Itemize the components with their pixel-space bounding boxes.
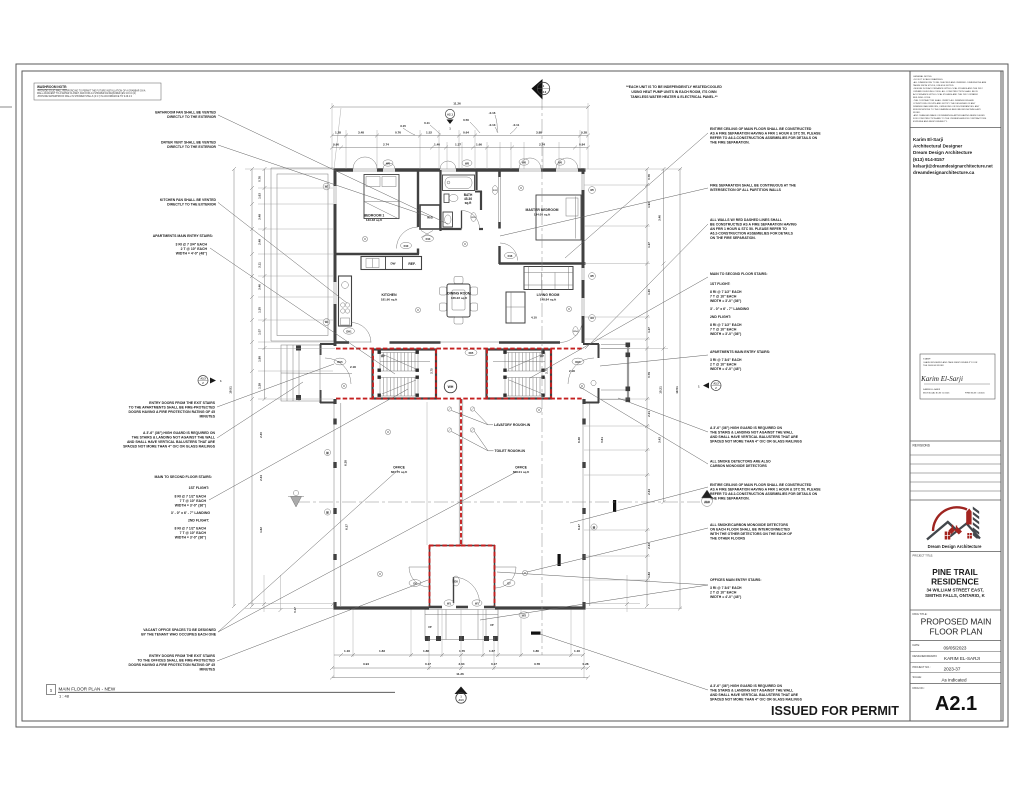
svg-text:148.84 sq.ft: 148.84 sq.ft	[540, 298, 556, 302]
svg-text:0.76: 0.76	[647, 174, 651, 180]
svg-text:2.74: 2.74	[383, 143, 389, 147]
svg-text:D7: D7	[507, 581, 511, 585]
svg-text:2ND FLIGHT:: 2ND FLIGHT:	[188, 519, 209, 523]
svg-text:1.63: 1.63	[258, 193, 262, 199]
svg-text:KARIM EL-SARJI: KARIM EL-SARJI	[944, 656, 980, 661]
svg-text:DATE:: DATE:	[913, 643, 921, 647]
svg-text:-DO NOT SCALE DRAWINGS.: -DO NOT SCALE DRAWINGS.	[913, 78, 944, 81]
svg-text:ON EACH FLOOR SHALL BE INTERCO: ON EACH FLOOR SHALL BE INTERCONNECTED	[710, 528, 790, 532]
svg-text:FIRE SEPARATION SHALL BE CONTI: FIRE SEPARATION SHALL BE CONTINUOUS AT T…	[710, 184, 797, 188]
svg-text:0.11: 0.11	[424, 121, 430, 125]
svg-text:Dream Design Architecture: Dream Design Architecture	[928, 544, 983, 549]
svg-text:1.07: 1.07	[258, 329, 262, 335]
svg-text:126.22 sq.ft: 126.22 sq.ft	[451, 296, 467, 300]
svg-text:A6.2-CONSTRUCTION ASSEMBLIES F: A6.2-CONSTRUCTION ASSEMBLIES FOR DETAILS	[710, 232, 794, 236]
svg-text:REF.: REF.	[408, 262, 415, 266]
svg-text:0.79: 0.79	[647, 372, 651, 378]
svg-text:W8: W8	[465, 161, 469, 165]
svg-text:0.17: 0.17	[293, 607, 297, 613]
svg-text:2023-37: 2023-37	[944, 667, 961, 672]
svg-text:W1: W1	[475, 601, 479, 605]
svg-text:1.37: 1.37	[455, 143, 461, 147]
svg-text:A 3'-6" (36") HIGH GUARD IS RE: A 3'-6" (36") HIGH GUARD IS REQUIRED ON	[143, 431, 215, 435]
svg-text:-PROVIDE WATERPROOF WALL IN SH: -PROVIDE WATERPROOF WALL IN SHOWER STALL…	[37, 95, 133, 98]
svg-text:DIRECTLY TO THE EXTERIOR: DIRECTLY TO THE EXTERIOR	[167, 145, 216, 149]
svg-text:DIMENSIONAL ERRORS, OMISSIONS: DIMENSIONAL ERRORS, OMISSIONS OR DISCREP…	[913, 105, 980, 108]
svg-text:2.40: 2.40	[259, 432, 263, 438]
svg-text:THE OTHER FLOORS: THE OTHER FLOORS	[710, 537, 746, 541]
svg-text:PINE TRAIL: PINE TRAIL	[932, 568, 978, 577]
svg-text:OFFICES MAIN ENTRY STAIRS:: OFFICES MAIN ENTRY STAIRS:	[710, 578, 762, 582]
svg-text:7 T @ 10" EACH: 7 T @ 10" EACH	[710, 328, 737, 332]
svg-text:3.46: 3.46	[258, 284, 262, 290]
svg-text:1.38: 1.38	[258, 383, 262, 389]
svg-text:11.26: 11.26	[456, 672, 464, 676]
svg-text:-THE CONTRACTOR SHALL VERIFY A: -THE CONTRACTOR SHALL VERIFY ALL DIMENSI…	[913, 99, 974, 102]
svg-text:WIDTH = 4'-0" (48"): WIDTH = 4'-0" (48")	[710, 595, 741, 599]
svg-text:SPACED NOT MORE THAN 4" O/C OR: SPACED NOT MORE THAN 4" O/C OR GLASS RAI…	[710, 440, 803, 444]
svg-text:RESIDENCE: RESIDENCE	[931, 578, 979, 587]
svg-text:BUILDING CODE.: BUILDING CODE.	[913, 97, 931, 99]
svg-text:663.75 sq.ft: 663.75 sq.ft	[391, 470, 407, 474]
svg-text:1ST FLIGHT:: 1ST FLIGHT:	[710, 282, 731, 286]
svg-text:USING HEAT PUMP UNITS IN EACH: USING HEAT PUMP UNITS IN EACH ROOM, ITS …	[631, 90, 717, 94]
svg-text:2 T @ 10" EACH: 2 T @ 10" EACH	[181, 247, 208, 251]
svg-text:WIDTH = 4'-0" (48"): WIDTH = 4'-0" (48")	[176, 252, 207, 256]
svg-text:ACCORDANCE WITH LOCAL BYLAWS A: ACCORDANCE WITH LOCAL BYLAWS AND THE 201…	[913, 93, 978, 96]
svg-text:A 3'-6" (36") HIGH GUARD IS RE: A 3'-6" (36") HIGH GUARD IS REQUIRED ON	[710, 684, 782, 688]
svg-text:THE STAIRS & LANDING NOT AGAIN: THE STAIRS & LANDING NOT AGAINST THE WAL…	[710, 689, 793, 693]
svg-text:ALL SMOKE/CARBON MONOXIDE DETE: ALL SMOKE/CARBON MONOXIDE DETECTORS	[710, 523, 789, 527]
svg-text:34 WILLIAM STREET EAST,: 34 WILLIAM STREET EAST,	[926, 588, 983, 593]
svg-text:1.52: 1.52	[426, 131, 432, 135]
svg-text:DESIGNED/DRAWN:: DESIGNED/DRAWN:	[913, 654, 938, 658]
svg-text:DIRECTLY TO THE EXTERIOR: DIRECTLY TO THE EXTERIOR	[167, 203, 216, 207]
svg-text:THE STAIRS & LANDING NOT AGAIN: THE STAIRS & LANDING NOT AGAINST THE WAL…	[132, 436, 215, 440]
svg-text:181.90 sq.ft: 181.90 sq.ft	[381, 298, 397, 302]
svg-text:0.17: 0.17	[491, 662, 497, 666]
svg-text:WIDTH = 3'-0" (36"): WIDTH = 3'-0" (36")	[710, 332, 741, 336]
svg-text:19.51: 19.51	[229, 386, 233, 394]
svg-text:WIDTH = 3'-0" (36"): WIDTH = 3'-0" (36")	[710, 299, 741, 303]
svg-text:668.01 sq.ft: 668.01 sq.ft	[513, 470, 529, 474]
svg-text:2.44: 2.44	[647, 489, 651, 495]
svg-text:CONDITIONS ON SITE AND NOTIFY: CONDITIONS ON SITE AND NOTIFY THE DESIGN…	[913, 102, 976, 105]
svg-text:A3.0: A3.0	[704, 500, 710, 504]
svg-text:GENERAL NOTES:: GENERAL NOTES:	[913, 75, 933, 78]
svg-text:2ND FLIGHT:: 2ND FLIGHT:	[710, 315, 731, 319]
svg-text:W6: W6	[522, 160, 526, 164]
svg-text:ALL SMOKE DETECTORS ARE ALSO: ALL SMOKE DETECTORS ARE ALSO	[710, 460, 771, 464]
svg-text:MODIFICATIONS TO THE DRAWINGS: MODIFICATIONS TO THE DRAWINGS BEFORE REV…	[913, 108, 981, 111]
svg-text:A3.3: A3.3	[200, 378, 206, 381]
svg-text:2 T @ 10" EACH: 2 T @ 10" EACH	[710, 363, 737, 367]
svg-text:DW: DW	[391, 262, 396, 266]
svg-text:W2: W2	[522, 613, 526, 617]
svg-text:KITCHEN FAN SHALL BE VENTED: KITCHEN FAN SHALL BE VENTED	[160, 198, 217, 202]
svg-text:VACANT OFFICE SPACES TO BE DES: VACANT OFFICE SPACES TO BE DESIGNED	[143, 628, 216, 632]
svg-text:-DESIGN IS IN ACCORDANCE WITH: -DESIGN IS IN ACCORDANCE WITH LOCAL BYLA…	[913, 87, 983, 90]
svg-text:ENTIRE CEILING OF MAIN FLOOR S: ENTIRE CEILING OF MAIN FLOOR SHALL BE CO…	[710, 127, 812, 131]
svg-text:M: M	[593, 525, 595, 529]
svg-text:A 3'-6" (36") HIGH GUARD IS RE: A 3'-6" (36") HIGH GUARD IS REQUIRED ON	[710, 426, 782, 430]
svg-text:sq.ft: sq.ft	[465, 201, 473, 205]
svg-text:I HAVE REVIEWED AND TAKE RESPO: I HAVE REVIEWED AND TAKE RESPONSIBILITY …	[923, 361, 978, 364]
svg-text:3 RI @ 7 3/4" EACH: 3 RI @ 7 3/4" EACH	[175, 243, 207, 247]
svg-text:THE STAIRS & LANDING NOT AGAIN: THE STAIRS & LANDING NOT AGAINST THE WAL…	[710, 431, 793, 435]
svg-text:3' - 0" x 6' - 7" LANDING: 3' - 0" x 6' - 7" LANDING	[171, 511, 210, 515]
svg-text:2.18: 2.18	[569, 369, 575, 373]
svg-text:3.46: 3.46	[658, 215, 662, 221]
svg-text:7 T @ 10" EACH: 7 T @ 10" EACH	[180, 531, 207, 535]
svg-text:3.78: 3.78	[534, 662, 540, 666]
svg-text:FOR CONSTRUCTION ARE TO THE OW: FOR CONSTRUCTION ARE TO THE OWNERS AND/O…	[913, 117, 987, 120]
svg-text:PROJECT TITLE:: PROJECT TITLE:	[913, 554, 934, 558]
svg-text:WORK.: WORK.	[913, 112, 921, 114]
svg-text:REVISIONS: REVISIONS	[913, 444, 930, 448]
svg-text:3.48: 3.48	[358, 131, 364, 135]
svg-text:0.76: 0.76	[258, 176, 262, 182]
svg-text:2 T @ 10" EACH: 2 T @ 10" EACH	[710, 591, 737, 595]
svg-text:1.66: 1.66	[476, 143, 482, 147]
svg-text:3' - 0" x 6' - 7" LANDING: 3' - 0" x 6' - 7" LANDING	[710, 307, 749, 311]
svg-text:DINING ROOM: DINING ROOM	[447, 292, 471, 296]
svg-text:DWG TITLE:: DWG TITLE:	[913, 612, 928, 616]
svg-text:1.40: 1.40	[434, 143, 440, 147]
svg-text:6.17: 6.17	[345, 524, 349, 530]
svg-text:8 RI @ 7 1/2" EACH: 8 RI @ 7 1/2" EACH	[174, 527, 206, 531]
svg-text:LIVING ROOM: LIVING ROOM	[537, 293, 560, 297]
svg-text:0.61: 0.61	[600, 437, 604, 443]
svg-text:1.16: 1.16	[574, 649, 580, 653]
svg-text:Karim El-Sarji: Karim El-Sarji	[913, 137, 943, 142]
svg-text:THE FIRE SEPARATION.: THE FIRE SEPARATION.	[710, 497, 750, 501]
svg-text:2.48: 2.48	[258, 239, 262, 245]
svg-text:APARTMENTS MAIN ENTRY STAIRS:: APARTMENTS MAIN ENTRY STAIRS:	[153, 234, 213, 238]
svg-text:-0.13: -0.13	[489, 123, 496, 127]
svg-text:AND SHALL HAVE VERTICAL BALUST: AND SHALL HAVE VERTICAL BALUSTERS THAT A…	[710, 693, 799, 697]
svg-text:AND SHALL HAVE VERTICAL BALUST: AND SHALL HAVE VERTICAL BALUSTERS THAT A…	[710, 435, 799, 439]
svg-text:0.76: 0.76	[395, 131, 401, 135]
svg-text:6.17: 6.17	[577, 524, 581, 530]
svg-text:M: M	[326, 510, 328, 514]
svg-text:6.38: 6.38	[344, 460, 348, 466]
svg-text:STAMP:: STAMP:	[923, 358, 931, 361]
svg-text:WASHROOM NOTE:: WASHROOM NOTE:	[37, 85, 67, 89]
svg-text:2.18: 2.18	[350, 365, 356, 369]
svg-text:dreamdesignarchitecture.ca: dreamdesignarchitecture.ca	[913, 170, 975, 175]
svg-text:09/05/2023: 09/05/2023	[944, 646, 967, 651]
svg-text:THE DESIGN WORK: THE DESIGN WORK	[923, 365, 944, 367]
svg-text:SPACED NOT MORE THAN 4" O/C OR: SPACED NOT MORE THAN 4" O/C OR GLASS RAI…	[710, 698, 803, 702]
svg-text:AS A FIRE SEPARATION HAVING A: AS A FIRE SEPARATION HAVING A FRR 1 HOUR…	[710, 132, 821, 136]
svg-text:1.80: 1.80	[533, 649, 539, 653]
svg-text:FIRM BCIN: 115546: FIRM BCIN: 115546	[965, 393, 985, 395]
svg-text:EXPENSE AND RESPONSIBILITY.: EXPENSE AND RESPONSIBILITY.	[913, 120, 948, 123]
svg-text:3.11: 3.11	[258, 262, 262, 268]
svg-text:2.44: 2.44	[259, 475, 263, 481]
svg-text:D05: D05	[469, 351, 474, 355]
svg-text:A2.1: A2.1	[447, 113, 453, 117]
svg-text:1.83: 1.83	[379, 649, 385, 653]
svg-text:ON THE FIRE SEPARATION.: ON THE FIRE SEPARATION.	[710, 236, 756, 240]
svg-text:BEDROOM 1: BEDROOM 1	[364, 214, 385, 218]
svg-text:WIDTH = 3'-0" (36"): WIDTH = 3'-0" (36")	[175, 504, 206, 508]
svg-text:PROPOSED MAIN: PROPOSED MAIN	[921, 617, 992, 627]
svg-text:REFER TO A6.2-CONSTRUCTION ASS: REFER TO A6.2-CONSTRUCTION ASSEMBLIES FO…	[710, 492, 818, 496]
svg-text:TANKLESS WATER HEATER & ELECTR: TANKLESS WATER HEATER & ELECTRICAL PANEL…	[630, 95, 718, 99]
svg-text:3 RI @ 7 3/4" EACH: 3 RI @ 7 3/4" EACH	[710, 358, 742, 362]
svg-text:1.67: 1.67	[489, 649, 495, 653]
svg-text:1.28: 1.28	[335, 131, 341, 135]
svg-text:KITCHEN: KITCHEN	[381, 293, 397, 297]
svg-text:DH1: DH1	[346, 329, 352, 333]
svg-text:1 : 48: 1 : 48	[59, 694, 70, 699]
svg-text:UP: UP	[381, 354, 385, 358]
svg-text:WIDTH = 4'-0" (48"): WIDTH = 4'-0" (48")	[710, 367, 741, 371]
svg-text:LAVATORY ROUGH-IN: LAVATORY ROUGH-IN	[494, 423, 531, 427]
svg-text:DOORS HAVING A FIRE PROTECTION: DOORS HAVING A FIRE PROTECTION RATING OF…	[128, 410, 215, 414]
svg-text:0.64: 0.64	[463, 131, 469, 135]
svg-text:TAKEN FROM STUDS, UNLESS NOTED: TAKEN FROM STUDS, UNLESS NOTED.	[913, 84, 954, 87]
svg-text:W1: W1	[447, 601, 451, 605]
svg-text:WH: WH	[448, 385, 454, 389]
svg-text:SCALE:: SCALE:	[913, 675, 923, 679]
svg-text:2.75: 2.75	[430, 368, 434, 374]
svg-text:D8: D8	[454, 579, 458, 583]
svg-text:MINUTES: MINUTES	[200, 668, 216, 672]
svg-text:0.28: 0.28	[582, 662, 588, 666]
svg-text:REFER TO A6.2-CONSTRUCTION ASS: REFER TO A6.2-CONSTRUCTION ASSEMBLIES FO…	[710, 136, 818, 140]
svg-text:A2.1: A2.1	[935, 693, 977, 715]
svg-text:3.15: 3.15	[400, 124, 406, 128]
svg-text:OFFICE: OFFICE	[515, 466, 527, 470]
svg-text:AN FRR 1 HOUR & STC 50. PLEASE: AN FRR 1 HOUR & STC 50. PLEASE REFER TO	[710, 227, 787, 231]
svg-text:1.88: 1.88	[423, 649, 429, 653]
svg-text:3.43: 3.43	[658, 437, 662, 443]
svg-text:3.48: 3.48	[258, 214, 262, 220]
svg-text:0.28: 0.28	[581, 131, 587, 135]
svg-text:(613) 914-8157: (613) 914-8157	[913, 157, 945, 162]
svg-text:1.27: 1.27	[647, 327, 651, 333]
svg-text:-0.16: -0.16	[489, 111, 496, 115]
svg-text:W6: W6	[386, 161, 390, 165]
svg-text:-0.11: -0.11	[513, 123, 520, 127]
svg-text:DH5: DH5	[337, 360, 343, 364]
svg-text:INTERSECTION OF ALL PARTITION: INTERSECTION OF ALL PARTITION WALLS	[710, 188, 782, 192]
svg-text:BE CONSTRUCTED AS A FIRE SEPAR: BE CONSTRUCTED AS A FIRE SEPARATION HAVI…	[710, 223, 797, 227]
svg-text:ALL WALLS W/ RED DASHED LINES: ALL WALLS W/ RED DASHED LINES SHALL	[710, 218, 782, 222]
svg-text:3.94: 3.94	[363, 662, 369, 666]
svg-text:D16: D16	[508, 254, 513, 258]
svg-text:SMITHS FALLS, ONTARIO, K: SMITHS FALLS, ONTARIO, K	[925, 593, 986, 598]
svg-text:DH5: DH5	[575, 360, 581, 364]
svg-text:BATHROOM FAN SHALL BE VENTED: BATHROOM FAN SHALL BE VENTED	[155, 111, 216, 115]
svg-text:ENTIRE CEILING OF MAIN FLOOR S: ENTIRE CEILING OF MAIN FLOOR SHALL BE CO…	[710, 483, 812, 487]
svg-text:BY THE TENANT WHO OCCUPIES EAC: BY THE TENANT WHO OCCUPIES EACH ONE	[141, 633, 217, 637]
svg-text:1ST FLIGHT:: 1ST FLIGHT:	[189, 486, 210, 490]
svg-text:2.43: 2.43	[647, 543, 651, 549]
svg-text:As indicated: As indicated	[941, 678, 966, 683]
svg-text:Dream Design Architecture: Dream Design Architecture	[913, 150, 973, 155]
svg-text:AS A FIRE SEPARATION HAVING A: AS A FIRE SEPARATION HAVING A FRR 1 HOUR…	[710, 488, 821, 492]
svg-text:**EACH UNIT IS TO BE INDEPENDE: **EACH UNIT IS TO BE INDEPENDENTLY HEATE…	[626, 85, 722, 89]
svg-text:W6: W6	[558, 160, 562, 164]
svg-text:1.30: 1.30	[647, 289, 651, 295]
svg-text:A4.0: A4.0	[541, 90, 547, 94]
svg-text:ENTRY DOORS FROM THE EXIT STAI: ENTRY DOORS FROM THE EXIT STAIRS	[149, 401, 216, 405]
svg-text:DWG NO.:: DWG NO.:	[913, 686, 926, 690]
svg-text:7 T @ 10" EACH: 7 T @ 10" EACH	[710, 295, 737, 299]
svg-text:ENTRY DOORS FROM THE EXIT STAI: ENTRY DOORS FROM THE EXIT STAIRS	[149, 654, 216, 658]
svg-text:A3.3: A3.3	[713, 383, 719, 386]
svg-text:CARBON MONOXIDE DETECTORS: CARBON MONOXIDE DETECTORS	[710, 464, 768, 468]
svg-text:Karim El-Sarji: Karim El-Sarji	[920, 375, 963, 383]
svg-text:KARIM EL-SARJI: KARIM EL-SARJI	[923, 388, 941, 391]
svg-text:19.51: 19.51	[675, 386, 679, 394]
svg-text:APARTMENTS MAIN ENTRY STAIRS:: APARTMENTS MAIN ENTRY STAIRS:	[710, 350, 770, 354]
svg-text:MAIN TO SECOND FLOOR STAIRS:: MAIN TO SECOND FLOOR STAIRS:	[710, 272, 768, 276]
svg-text:kelsarji@dreamdesignarchitectu: kelsarji@dreamdesignarchitecture.net	[913, 163, 993, 168]
svg-text:AND SHALL HAVE VERTICAL BALUST: AND SHALL HAVE VERTICAL BALUSTERS THAT A…	[127, 440, 216, 444]
svg-text:D10: D10	[404, 244, 409, 248]
svg-text:0.50: 0.50	[463, 118, 469, 122]
svg-text:UP: UP	[490, 623, 494, 627]
svg-text:11.26: 11.26	[453, 102, 461, 106]
svg-text:1.62: 1.62	[259, 527, 263, 533]
svg-text:M: M	[326, 451, 328, 455]
svg-text:15.21: 15.21	[659, 386, 663, 394]
svg-text:FLOOR PLAN: FLOOR PLAN	[929, 627, 982, 637]
svg-text:8 RI @ 7 1/2" EACH: 8 RI @ 7 1/2" EACH	[710, 323, 742, 327]
svg-text:THE FIRE SEPARATION.: THE FIRE SEPARATION.	[710, 141, 750, 145]
svg-text:UP: UP	[428, 625, 432, 629]
svg-text:WITH THE OTHER DETECTORS ON TH: WITH THE OTHER DETECTORS ON THE EACH OF	[710, 532, 792, 536]
svg-text:PROJECT NO.:: PROJECT NO.:	[913, 665, 931, 669]
svg-text:MAIN FLOOR PLAN - NEW: MAIN FLOOR PLAN - NEW	[59, 687, 116, 692]
svg-text:-PROVIDE SOLID WALL REINFORCIN: -PROVIDE SOLID WALL REINFORCING TO PERMI…	[37, 90, 146, 93]
svg-text:2.74: 2.74	[539, 143, 545, 147]
svg-text:8 RI @ 7 1/2" EACH: 8 RI @ 7 1/2" EACH	[174, 495, 206, 499]
svg-text:133.48 sq.ft: 133.48 sq.ft	[366, 218, 382, 222]
svg-text:OFFICE: OFFICE	[393, 466, 405, 470]
svg-text:WIDTH = 3'-0" (36"): WIDTH = 3'-0" (36")	[175, 536, 206, 540]
svg-text:4.10: 4.10	[531, 316, 537, 320]
svg-text:DOORS HAVING A FIRE PROTECTION: DOORS HAVING A FIRE PROTECTION RATING OF…	[128, 663, 215, 667]
svg-text:ISSUED FOR PERMIT: ISSUED FOR PERMIT	[771, 704, 899, 718]
svg-text:7 T @ 10" EACH: 7 T @ 10" EACH	[180, 499, 207, 503]
svg-text:DRYER VENT SHALL BE VENTED: DRYER VENT SHALL BE VENTED	[161, 141, 217, 145]
svg-text:TO THE OFFICES SHALL BE FIRE-P: TO THE OFFICES SHALL BE FIRE-PROTECTED	[137, 659, 215, 663]
svg-text:TO THE APARTMENTS SHALL BE FIR: TO THE APARTMENTS SHALL BE FIRE-PROTECTE…	[129, 406, 216, 410]
svg-text:6.38: 6.38	[577, 437, 581, 443]
svg-text:DIRECTLY TO THE EXTERIOR: DIRECTLY TO THE EXTERIOR	[167, 115, 216, 119]
svg-text:MINUTES: MINUTES	[200, 415, 216, 419]
svg-text:2.21: 2.21	[647, 411, 651, 417]
svg-text:ONTARIO BUILDING CODE. ALL CON: ONTARIO BUILDING CODE. ALL CONSTRUCTION …	[913, 90, 978, 93]
svg-text:3.88: 3.88	[536, 131, 542, 135]
svg-text:D13: D13	[426, 237, 431, 241]
svg-text:WALL ADJACENT TO A WATER CLOSE: WALL ADJACENT TO A WATER CLOSET, AND FOR…	[37, 92, 136, 95]
svg-text:0.84: 0.84	[579, 143, 585, 147]
svg-text:1.35: 1.35	[258, 307, 262, 313]
svg-text:2.64: 2.64	[458, 662, 464, 666]
svg-text:1.93: 1.93	[647, 202, 651, 208]
svg-text:1.83: 1.83	[647, 572, 651, 578]
svg-text:INDIVIDUAL BCIN: 115545: INDIVIDUAL BCIN: 115545	[923, 392, 950, 395]
svg-text:1.70: 1.70	[459, 649, 465, 653]
svg-text:1.99: 1.99	[258, 356, 262, 362]
svg-text:MAIN TO SECOND FLOOR STAIRS:: MAIN TO SECOND FLOOR STAIRS:	[154, 475, 212, 479]
svg-text:A3.0: A3.0	[458, 699, 464, 702]
svg-text:0.90: 0.90	[333, 143, 339, 147]
svg-text:8 RI @ 7 1/2" EACH: 8 RI @ 7 1/2" EACH	[710, 290, 742, 294]
svg-text:0.17: 0.17	[425, 662, 431, 666]
svg-text:1.16: 1.16	[344, 649, 350, 653]
svg-text:1.27: 1.27	[647, 242, 651, 248]
svg-text:SPACED NOT MORE THAN 4" O/C OR: SPACED NOT MORE THAN 4" O/C OR GLASS RAI…	[123, 445, 216, 449]
svg-text:-ALL DIMENSIONS TO BE CHECKED: -ALL DIMENSIONS TO BE CHECKED AND VERIFI…	[913, 81, 987, 84]
svg-text:Architectural Designer: Architectural Designer	[913, 144, 962, 149]
svg-text:TOILET ROUGH-IN: TOILET ROUGH-IN	[495, 449, 526, 453]
svg-text:3 RI @ 7 3/4" EACH: 3 RI @ 7 3/4" EACH	[710, 586, 742, 590]
svg-text:-ANY CHANGES MADE ON DRAWINGS: -ANY CHANGES MADE ON DRAWINGS AFTER HAVI…	[913, 114, 985, 117]
